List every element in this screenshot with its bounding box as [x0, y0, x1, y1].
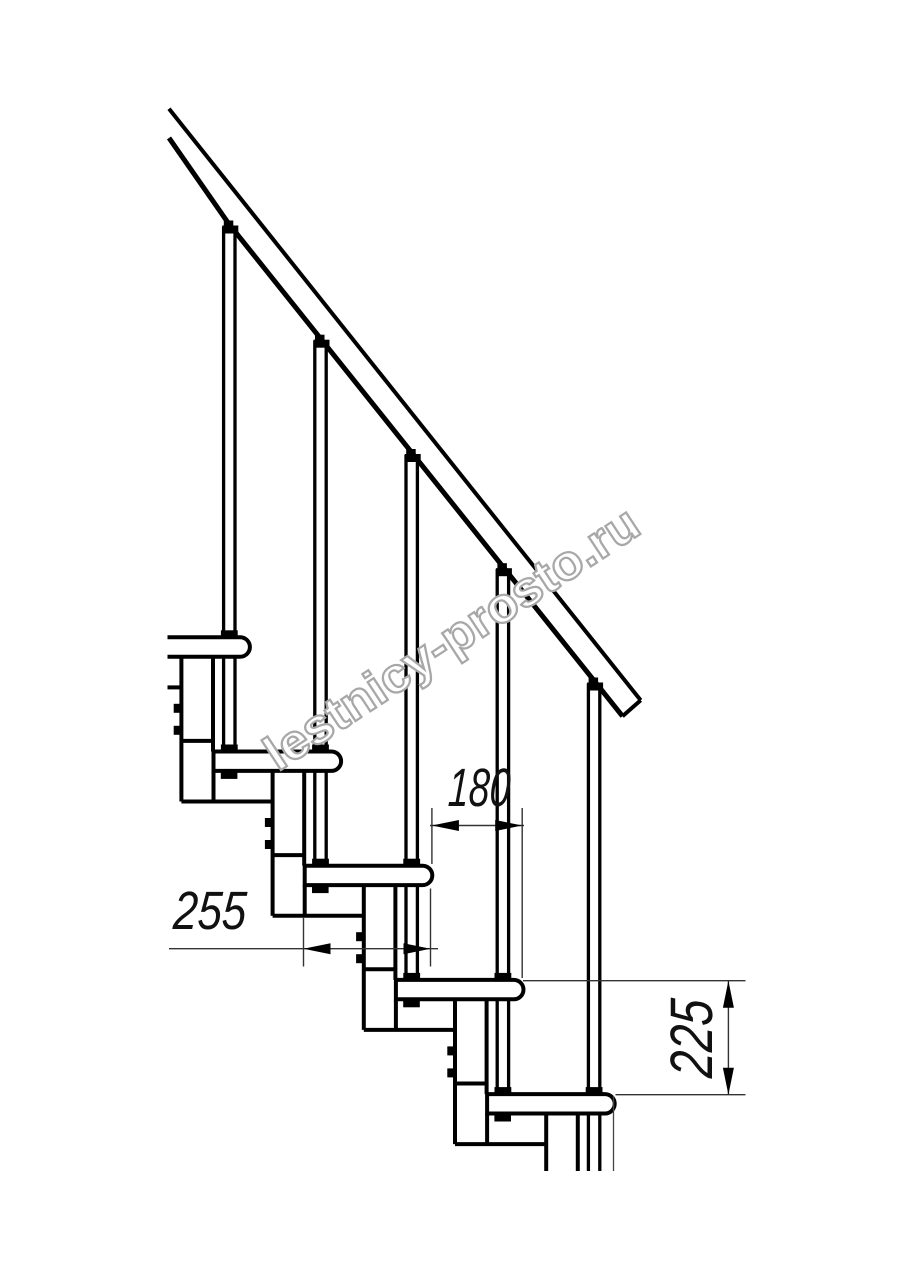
- svg-text:180: 180: [447, 757, 512, 817]
- svg-text:255: 255: [171, 881, 249, 941]
- svg-text:225: 225: [659, 996, 726, 1080]
